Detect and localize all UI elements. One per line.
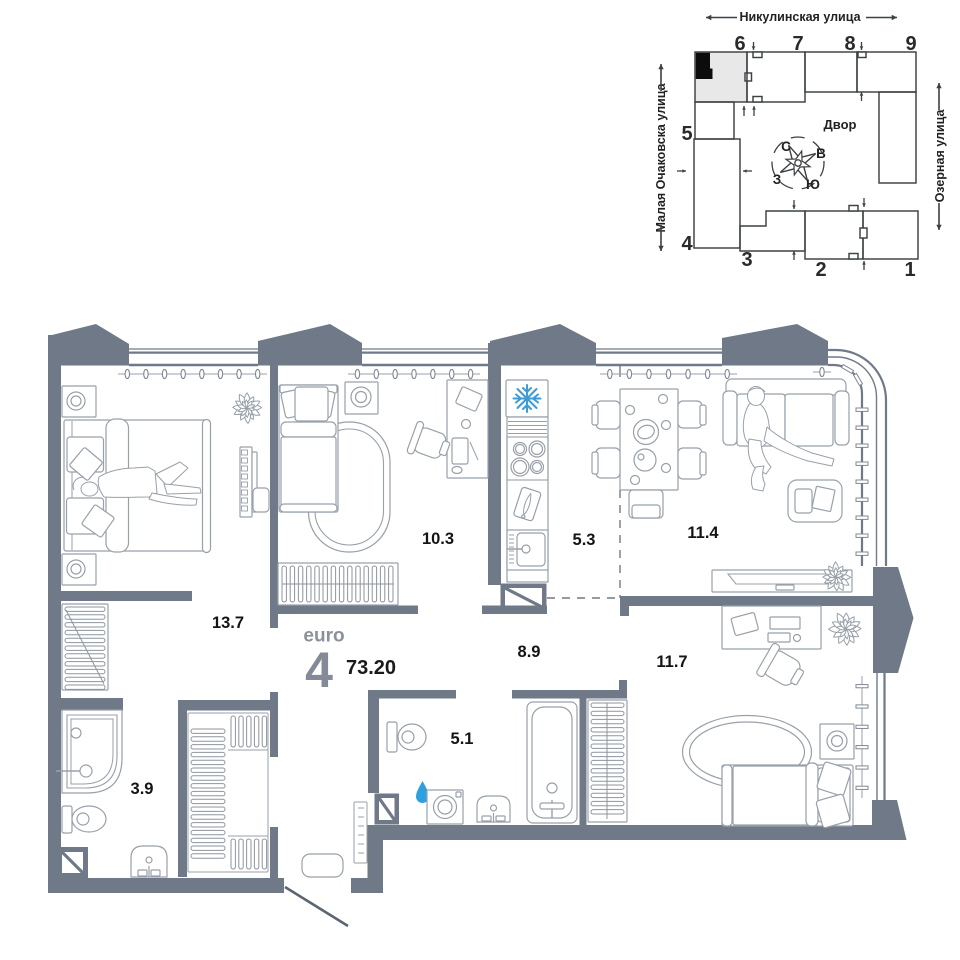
svg-text:5: 5 — [681, 123, 692, 145]
svg-text:3.9: 3.9 — [131, 780, 154, 798]
svg-text:11.4: 11.4 — [687, 524, 719, 542]
svg-text:Никулинская улица: Никулинская улица — [739, 10, 861, 24]
svg-text:2: 2 — [815, 259, 826, 281]
svg-text:Ю: Ю — [806, 177, 820, 192]
svg-text:Двор: Двор — [824, 117, 857, 132]
svg-text:Озерная улица: Озерная улица — [933, 109, 947, 203]
svg-text:С: С — [781, 139, 791, 154]
svg-text:8.9: 8.9 — [518, 643, 541, 661]
svg-text:В: В — [816, 146, 826, 161]
svg-text:11.7: 11.7 — [656, 653, 687, 671]
svg-text:9: 9 — [905, 33, 916, 55]
svg-text:5.1: 5.1 — [451, 730, 474, 748]
svg-text:10.3: 10.3 — [422, 530, 454, 548]
svg-text:8: 8 — [844, 33, 855, 55]
svg-text:13.7: 13.7 — [212, 614, 244, 632]
svg-text:5.3: 5.3 — [573, 531, 596, 549]
svg-text:Малая Очаковска улица: Малая Очаковска улица — [654, 82, 668, 232]
svg-text:З: З — [773, 172, 781, 187]
svg-text:3: 3 — [741, 249, 752, 271]
svg-text:6: 6 — [734, 33, 745, 55]
svg-text:7: 7 — [792, 33, 803, 55]
svg-text:4: 4 — [305, 642, 333, 698]
svg-text:1: 1 — [904, 259, 915, 281]
svg-text:73.20: 73.20 — [346, 657, 396, 679]
svg-text:4: 4 — [681, 233, 693, 255]
